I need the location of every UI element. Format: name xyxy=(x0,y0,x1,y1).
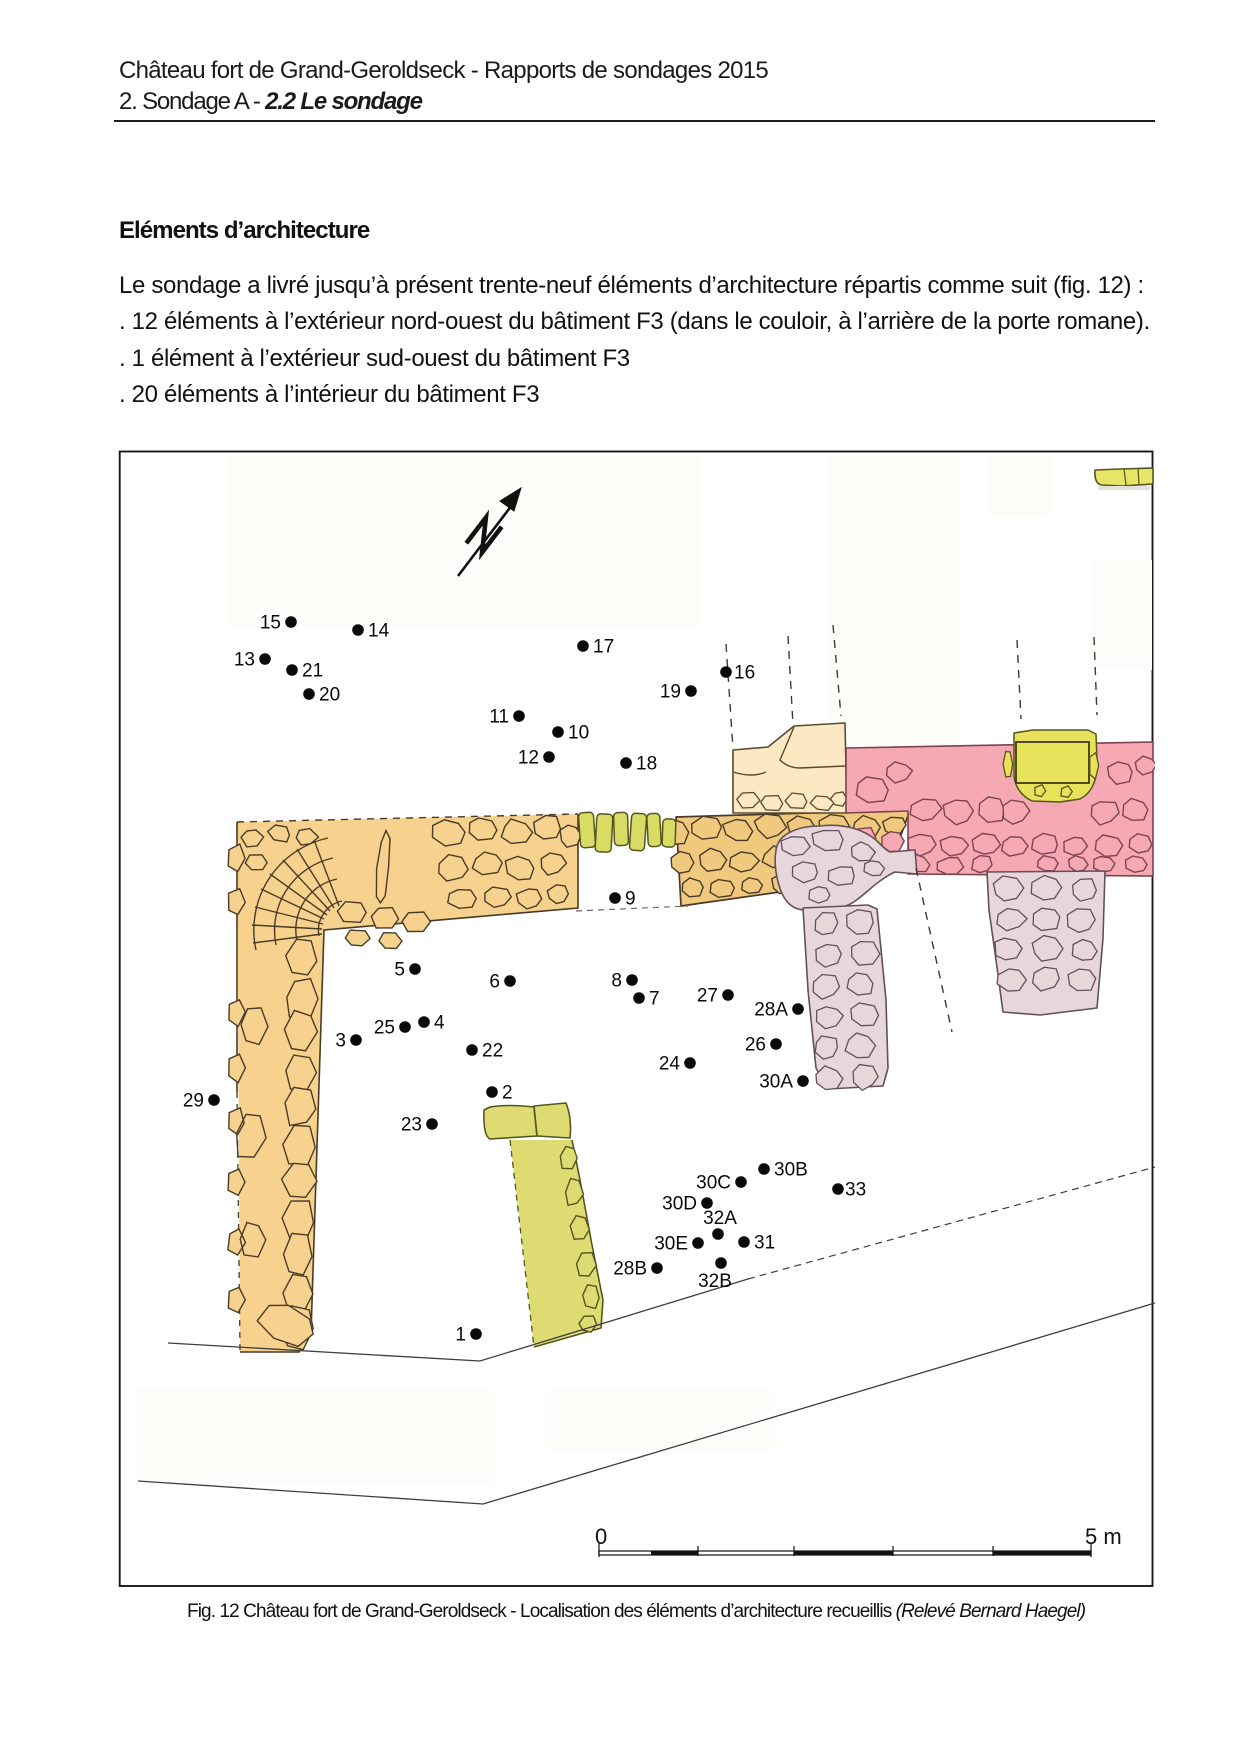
svg-text:29: 29 xyxy=(183,1091,204,1112)
svg-text:6: 6 xyxy=(489,972,500,993)
svg-text:5 m: 5 m xyxy=(1085,1524,1122,1549)
svg-text:9: 9 xyxy=(625,889,636,910)
svg-text:25: 25 xyxy=(374,1018,395,1039)
svg-text:26: 26 xyxy=(745,1035,766,1056)
svg-text:20: 20 xyxy=(319,685,340,706)
svg-text:16: 16 xyxy=(734,663,755,684)
svg-text:11: 11 xyxy=(489,707,509,728)
svg-text:28A: 28A xyxy=(754,1000,788,1021)
svg-text:13: 13 xyxy=(234,650,255,671)
svg-text:30D: 30D xyxy=(662,1194,697,1215)
svg-text:32A: 32A xyxy=(703,1208,737,1229)
svg-text:2: 2 xyxy=(502,1083,513,1104)
svg-text:1: 1 xyxy=(455,1325,466,1346)
svg-text:23: 23 xyxy=(401,1115,422,1136)
svg-text:22: 22 xyxy=(482,1041,503,1062)
svg-text:0: 0 xyxy=(595,1524,607,1549)
svg-text:19: 19 xyxy=(660,682,681,703)
svg-text:4: 4 xyxy=(434,1013,445,1034)
svg-text:14: 14 xyxy=(368,621,390,642)
svg-text:30C: 30C xyxy=(696,1173,731,1194)
svg-text:12: 12 xyxy=(518,748,539,769)
svg-text:31: 31 xyxy=(754,1233,775,1254)
svg-text:5: 5 xyxy=(394,960,405,981)
svg-text:10: 10 xyxy=(568,723,589,744)
svg-text:3: 3 xyxy=(335,1031,346,1052)
svg-text:30A: 30A xyxy=(759,1072,793,1093)
svg-text:33: 33 xyxy=(845,1180,866,1201)
svg-text:30B: 30B xyxy=(774,1160,808,1181)
svg-text:32B: 32B xyxy=(698,1271,732,1292)
svg-text:27: 27 xyxy=(697,986,718,1007)
svg-text:24: 24 xyxy=(659,1054,681,1075)
svg-text:18: 18 xyxy=(636,754,657,775)
svg-text:7: 7 xyxy=(649,989,660,1010)
svg-text:28B: 28B xyxy=(613,1259,647,1280)
svg-text:8: 8 xyxy=(611,971,622,992)
svg-text:30E: 30E xyxy=(654,1234,688,1255)
svg-text:15: 15 xyxy=(260,613,281,634)
svg-text:21: 21 xyxy=(302,661,323,682)
svg-text:17: 17 xyxy=(593,637,614,658)
